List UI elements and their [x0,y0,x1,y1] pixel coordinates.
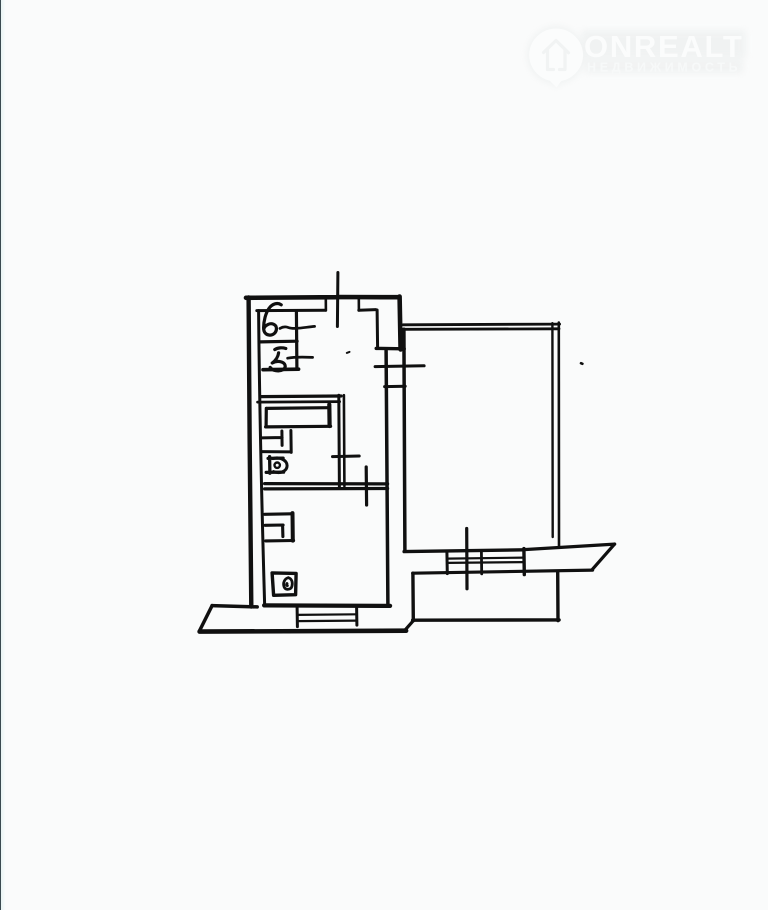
svg-text:ONREALT: ONREALT [584,29,743,64]
